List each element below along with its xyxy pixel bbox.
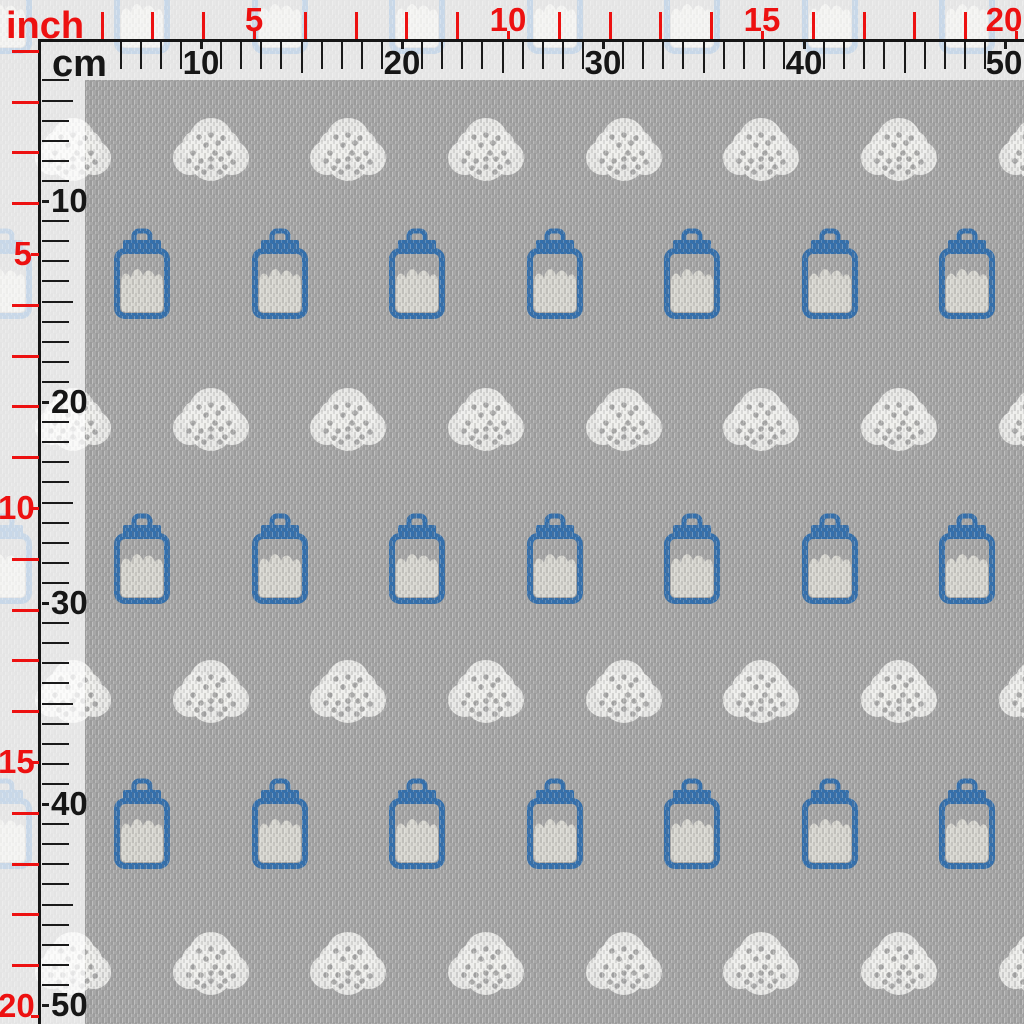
- cm-number: 20: [51, 385, 88, 418]
- cm-tick: [42, 863, 69, 865]
- cm-tick: [42, 301, 73, 303]
- cm-tick: [42, 79, 69, 81]
- cm-tick: [42, 100, 73, 102]
- cm-tick: [42, 120, 69, 122]
- cm-tick: [42, 622, 69, 624]
- fabric-swatch-preview: inch cm 5101520 1020304050 5101520 10203…: [0, 0, 1024, 1024]
- cm-tick: [42, 361, 69, 363]
- cm-tick: [42, 481, 69, 483]
- cm-tick-major: [42, 401, 49, 404]
- cm-tick: [42, 140, 69, 142]
- cm-tick: [42, 642, 69, 644]
- cm-tick: [42, 220, 69, 222]
- cm-tick: [42, 502, 73, 504]
- cm-tick: [42, 280, 69, 282]
- cm-tick: [42, 321, 69, 323]
- left-cm-ruler: 1020304050: [0, 0, 1024, 1024]
- cm-tick: [42, 723, 69, 725]
- cm-tick-major: [42, 602, 49, 605]
- cm-tick: [42, 662, 69, 664]
- cm-tick: [42, 823, 69, 825]
- cm-tick: [42, 964, 69, 966]
- cm-tick: [42, 240, 69, 242]
- cm-tick: [42, 562, 69, 564]
- cm-tick: [42, 341, 69, 343]
- cm-tick: [42, 682, 69, 684]
- cm-tick: [42, 441, 69, 443]
- cm-tick: [42, 260, 69, 262]
- cm-tick: [42, 843, 69, 845]
- cm-tick: [42, 883, 69, 885]
- cm-tick: [42, 461, 69, 463]
- cm-number: 30: [51, 586, 88, 619]
- cm-tick: [42, 703, 73, 705]
- cm-number: 10: [51, 184, 88, 217]
- cm-tick: [42, 522, 69, 524]
- cm-tick: [42, 763, 69, 765]
- cm-tick: [42, 944, 69, 946]
- cm-tick-major: [42, 200, 49, 203]
- cm-number: 50: [51, 988, 88, 1021]
- cm-tick: [42, 904, 73, 906]
- cm-tick: [42, 421, 69, 423]
- cm-tick-major: [42, 803, 49, 806]
- cm-number: 40: [51, 787, 88, 820]
- cm-tick: [42, 924, 69, 926]
- cm-tick: [42, 160, 69, 162]
- cm-tick: [42, 542, 69, 544]
- cm-tick: [42, 743, 69, 745]
- cm-tick-major: [42, 1004, 49, 1007]
